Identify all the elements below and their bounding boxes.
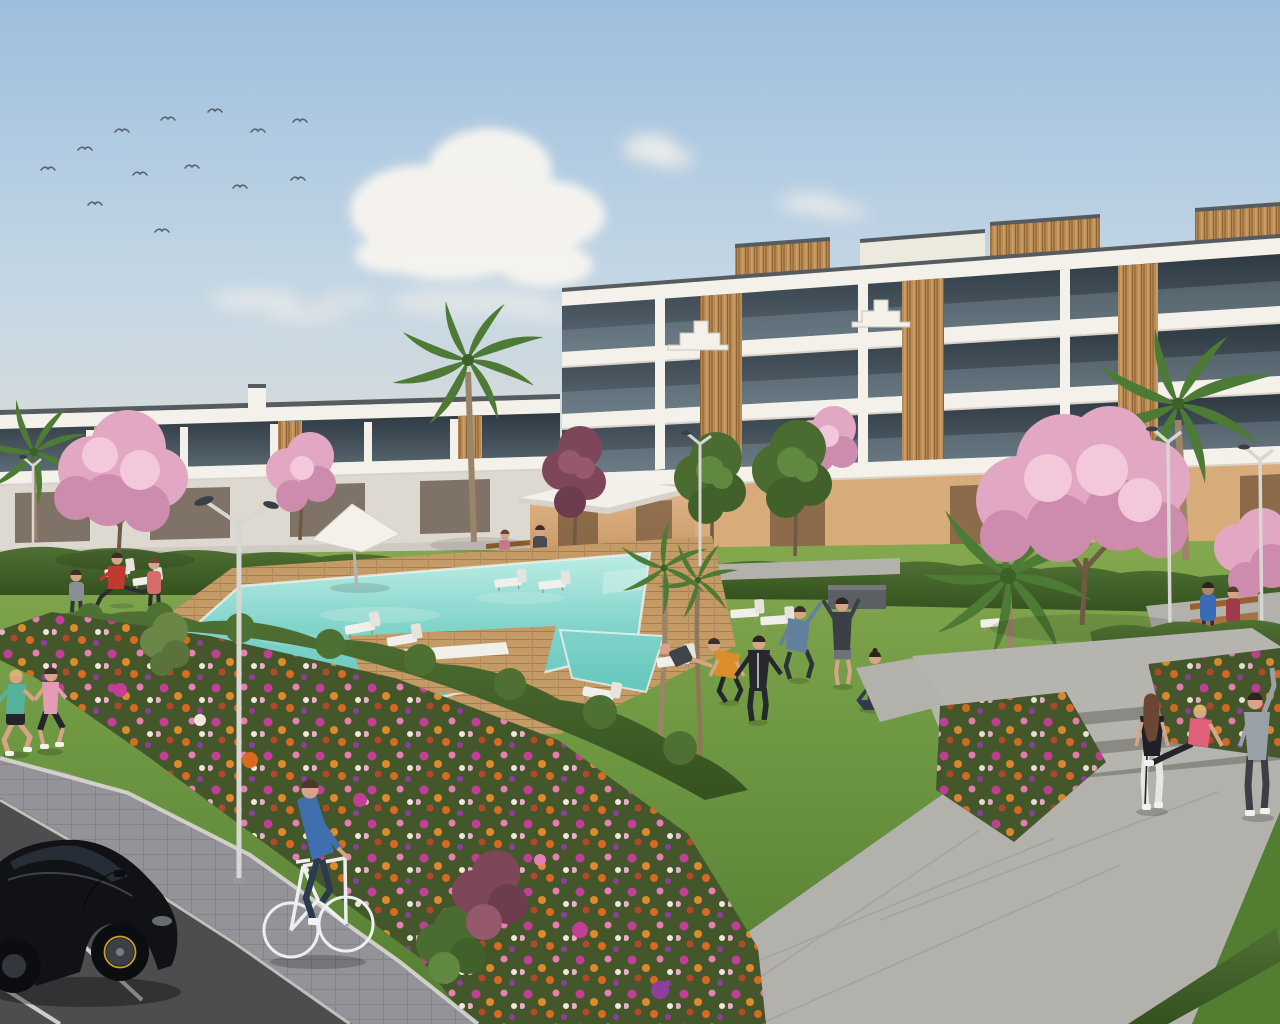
render-image: [0, 0, 1280, 1024]
